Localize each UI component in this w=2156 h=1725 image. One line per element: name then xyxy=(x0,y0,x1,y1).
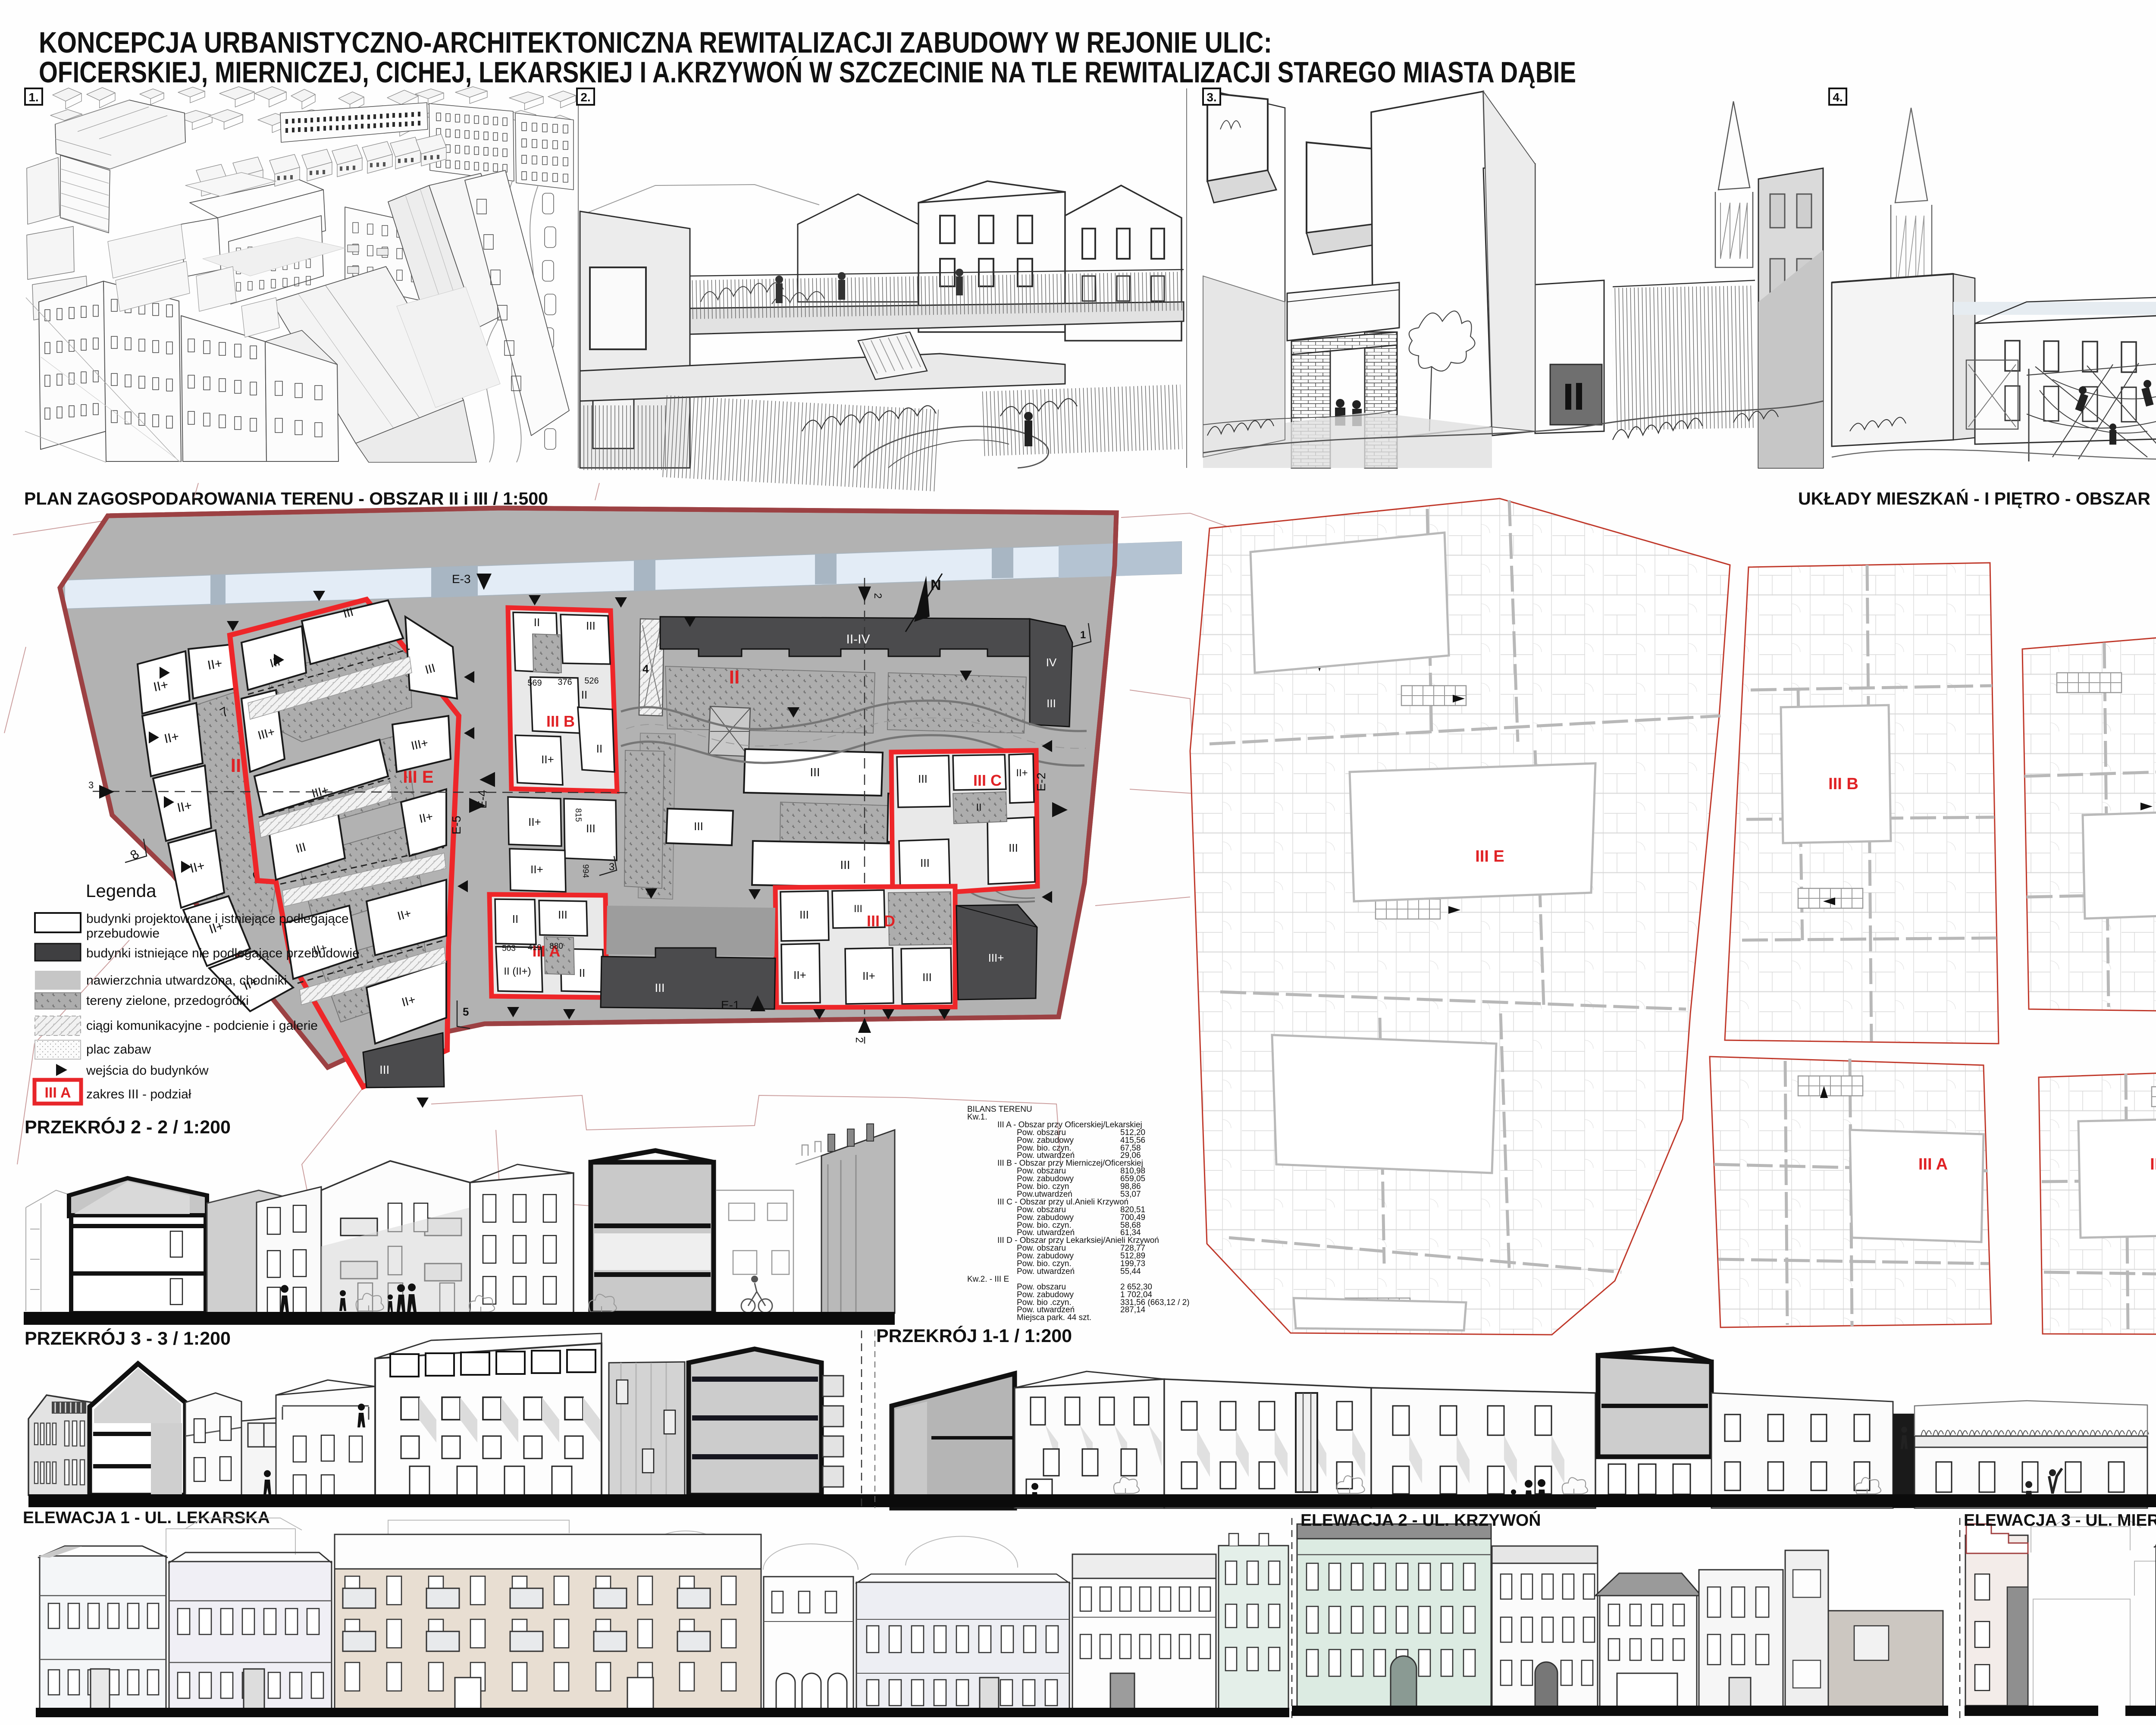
svg-text:4: 4 xyxy=(642,662,649,675)
svg-text:III: III xyxy=(854,903,862,915)
svg-text:503: 503 xyxy=(502,944,516,953)
svg-text:Kw.2. - III E: Kw.2. - III E xyxy=(967,1275,1009,1284)
svg-text:Pow. utwardzeń: Pow. utwardzeń xyxy=(1017,1267,1075,1276)
svg-text:E-2: E-2 xyxy=(1034,772,1048,791)
svg-text:II+: II+ xyxy=(163,729,180,746)
svg-text:III C: III C xyxy=(973,772,1002,789)
svg-text:III B: III B xyxy=(1828,775,1858,793)
svg-text:PRZEKRÓJ 1-1 / 1:200: PRZEKRÓJ 1-1 / 1:200 xyxy=(876,1325,1072,1346)
svg-text:II+: II+ xyxy=(541,753,554,766)
svg-text:III: III xyxy=(918,772,928,785)
svg-text:III: III xyxy=(922,971,932,984)
svg-text:II: II xyxy=(231,755,241,776)
svg-text:5: 5 xyxy=(463,1005,469,1018)
svg-text:E-5: E-5 xyxy=(450,815,463,834)
svg-text:E-4: E-4 xyxy=(476,790,489,809)
svg-text:815: 815 xyxy=(573,808,583,822)
svg-text:ciągi komunikacyjne - podcieni: ciągi komunikacyjne - podcienie i galeri… xyxy=(86,1019,318,1033)
svg-text:4.: 4. xyxy=(1833,91,1843,104)
svg-text:tereny zielone, przedogródki: tereny zielone, przedogródki xyxy=(86,994,249,1008)
svg-text:2: 2 xyxy=(853,1037,865,1043)
svg-text:287,14: 287,14 xyxy=(1120,1305,1146,1314)
svg-text:budynki istniejące nie podlega: budynki istniejące nie podlegające przeb… xyxy=(86,946,360,960)
svg-text:nawierzchnia utwardzona, chodn: nawierzchnia utwardzona, chodniki xyxy=(86,973,287,988)
svg-text:376: 376 xyxy=(558,677,572,687)
svg-text:III: III xyxy=(379,1063,389,1076)
svg-text:II+: II+ xyxy=(176,798,193,815)
svg-text:III E: III E xyxy=(1475,847,1504,866)
svg-text:wejścia do budynków: wejścia do budynków xyxy=(86,1063,209,1078)
svg-text:ELEWACJA 2 - UL. KRZYWOŃ: ELEWACJA 2 - UL. KRZYWOŃ xyxy=(1300,1511,1541,1530)
svg-text:II+: II+ xyxy=(1016,767,1028,779)
svg-text:419: 419 xyxy=(528,943,542,952)
svg-text:II (II+): II (II+) xyxy=(504,966,531,977)
svg-text:55,44: 55,44 xyxy=(1120,1267,1141,1276)
svg-text:III: III xyxy=(694,820,703,833)
svg-text:2: 2 xyxy=(872,593,884,599)
svg-text:III: III xyxy=(586,619,595,632)
svg-text:II: II xyxy=(596,742,602,755)
svg-text:PRZEKRÓJ 2 - 2 / 1:200: PRZEKRÓJ 2 - 2 / 1:200 xyxy=(25,1117,231,1138)
svg-text:3: 3 xyxy=(88,780,94,790)
svg-text:3: 3 xyxy=(609,861,614,873)
svg-text:III: III xyxy=(558,908,567,921)
svg-text:880: 880 xyxy=(549,942,563,951)
svg-text:III D: III D xyxy=(2150,1155,2156,1173)
svg-text:II: II xyxy=(534,616,540,629)
svg-text:II: II xyxy=(579,966,585,979)
svg-text:569: 569 xyxy=(527,678,542,688)
svg-text:E-3: E-3 xyxy=(452,572,471,586)
svg-text:III: III xyxy=(1009,841,1018,854)
svg-text:II+: II+ xyxy=(152,677,169,694)
svg-text:III: III xyxy=(810,765,820,779)
svg-text:II: II xyxy=(976,802,981,813)
svg-text:N: N xyxy=(931,577,941,593)
svg-text:II: II xyxy=(729,667,740,688)
svg-text:UKŁADY MIESZKAŃ - I PIĘTRO - O: UKŁADY MIESZKAŃ - I PIĘTRO - OBSZAR III … xyxy=(1798,489,2156,508)
svg-text:przebudowie: przebudowie xyxy=(86,926,160,941)
svg-text:II+: II+ xyxy=(793,969,806,982)
svg-text:plac zabaw: plac zabaw xyxy=(86,1042,151,1057)
svg-text:III E: III E xyxy=(403,768,433,787)
svg-text:526: 526 xyxy=(584,676,599,686)
svg-text:1.: 1. xyxy=(28,91,38,104)
svg-text:II-IV: II-IV xyxy=(846,632,870,646)
svg-text:KONCEPCJA URBANISTYCZNO-ARCHIT: KONCEPCJA URBANISTYCZNO-ARCHITEKTONICZNA… xyxy=(39,26,1272,59)
svg-text:IV: IV xyxy=(1046,656,1057,669)
svg-text:III: III xyxy=(1047,697,1056,710)
svg-text:III A: III A xyxy=(44,1085,71,1101)
svg-text:III: III xyxy=(655,981,664,994)
svg-text:budynki projektowane i istnie: budynki projektowane i istniejące podleg… xyxy=(86,912,349,926)
svg-text:II+: II+ xyxy=(418,809,434,825)
svg-text:II+: II+ xyxy=(530,863,543,876)
svg-text:E-1: E-1 xyxy=(721,998,740,1012)
svg-text:PRZEKRÓJ 3 - 3 / 1:200: PRZEKRÓJ 3 - 3 / 1:200 xyxy=(25,1328,231,1349)
svg-text:Legenda: Legenda xyxy=(86,881,157,901)
svg-text:III D: III D xyxy=(867,912,895,930)
svg-text:ELEWACJA 3 - UL. MIERNICZA: ELEWACJA 3 - UL. MIERNICZA xyxy=(1964,1511,2156,1530)
svg-text:994: 994 xyxy=(581,864,590,878)
svg-text:Miejsca park. 44 szt.: Miejsca park. 44 szt. xyxy=(1017,1313,1091,1322)
svg-text:III: III xyxy=(586,822,595,835)
svg-text:III+: III+ xyxy=(988,951,1004,964)
svg-text:III: III xyxy=(799,908,809,921)
svg-text:III: III xyxy=(920,856,930,869)
svg-text:zakres III - podział: zakres III - podział xyxy=(86,1087,191,1101)
svg-text:2.: 2. xyxy=(580,91,590,104)
svg-text:PLAN ZAGOSPODAROWANIA TERENU -: PLAN ZAGOSPODAROWANIA TERENU - OBSZAR II… xyxy=(24,489,548,508)
svg-text:II: II xyxy=(581,688,587,701)
svg-text:II+: II+ xyxy=(528,815,541,828)
svg-text:OFICERSKIEJ, MIERNICZEJ, CICHE: OFICERSKIEJ, MIERNICZEJ, CICHEJ, LEKARSK… xyxy=(39,56,1576,89)
svg-text:II+: II+ xyxy=(207,656,223,672)
svg-text:II+: II+ xyxy=(862,969,875,982)
svg-text:III: III xyxy=(840,858,850,872)
svg-text:1: 1 xyxy=(1080,629,1086,641)
svg-text:3.: 3. xyxy=(1206,91,1216,104)
svg-text:III B: III B xyxy=(546,712,575,730)
svg-text:III A: III A xyxy=(1918,1155,1948,1173)
svg-text:II: II xyxy=(512,913,518,925)
svg-text:Kw.1.: Kw.1. xyxy=(967,1113,987,1122)
